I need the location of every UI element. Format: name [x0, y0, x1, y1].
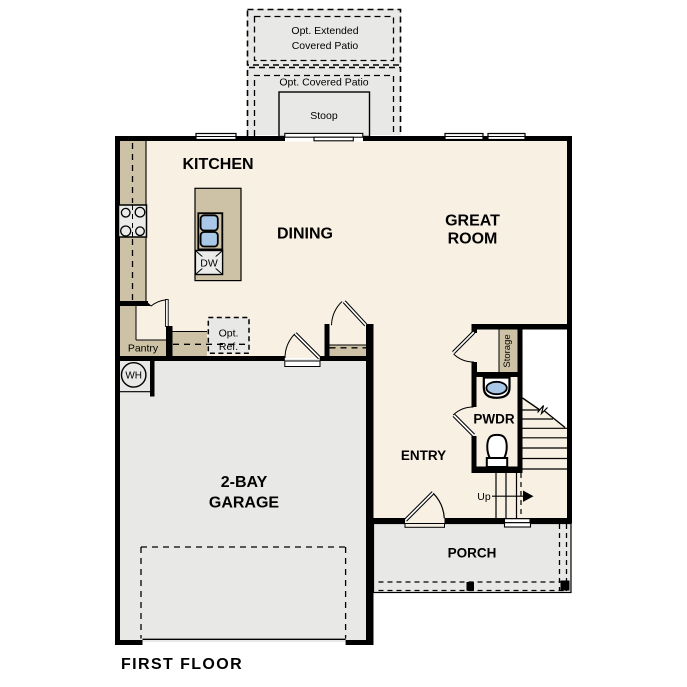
svg-text:Ref.: Ref. — [219, 341, 238, 353]
svg-text:Opt. Extended: Opt. Extended — [291, 25, 358, 37]
svg-text:PWDR: PWDR — [473, 412, 514, 427]
svg-text:Covered Patio: Covered Patio — [292, 40, 359, 52]
svg-text:Opt. Covered Patio: Opt. Covered Patio — [279, 77, 368, 89]
svg-text:PORCH: PORCH — [448, 546, 497, 561]
svg-text:Stoop: Stoop — [310, 110, 338, 122]
svg-text:Pantry: Pantry — [128, 343, 159, 355]
svg-text:KITCHEN: KITCHEN — [182, 156, 253, 173]
svg-text:FIRST FLOOR: FIRST FLOOR — [121, 656, 243, 673]
svg-text:Storage: Storage — [502, 334, 513, 367]
svg-text:GREAT: GREAT — [445, 213, 500, 230]
svg-text:Up: Up — [477, 491, 491, 503]
svg-text:DW: DW — [200, 258, 218, 270]
svg-text:2-BAY: 2-BAY — [221, 474, 268, 491]
svg-text:WH: WH — [125, 371, 142, 382]
svg-text:DINING: DINING — [277, 226, 333, 243]
svg-text:GARAGE: GARAGE — [209, 495, 280, 512]
svg-text:Opt.: Opt. — [219, 328, 239, 340]
svg-text:ENTRY: ENTRY — [401, 448, 446, 463]
svg-text:ROOM: ROOM — [448, 231, 498, 248]
